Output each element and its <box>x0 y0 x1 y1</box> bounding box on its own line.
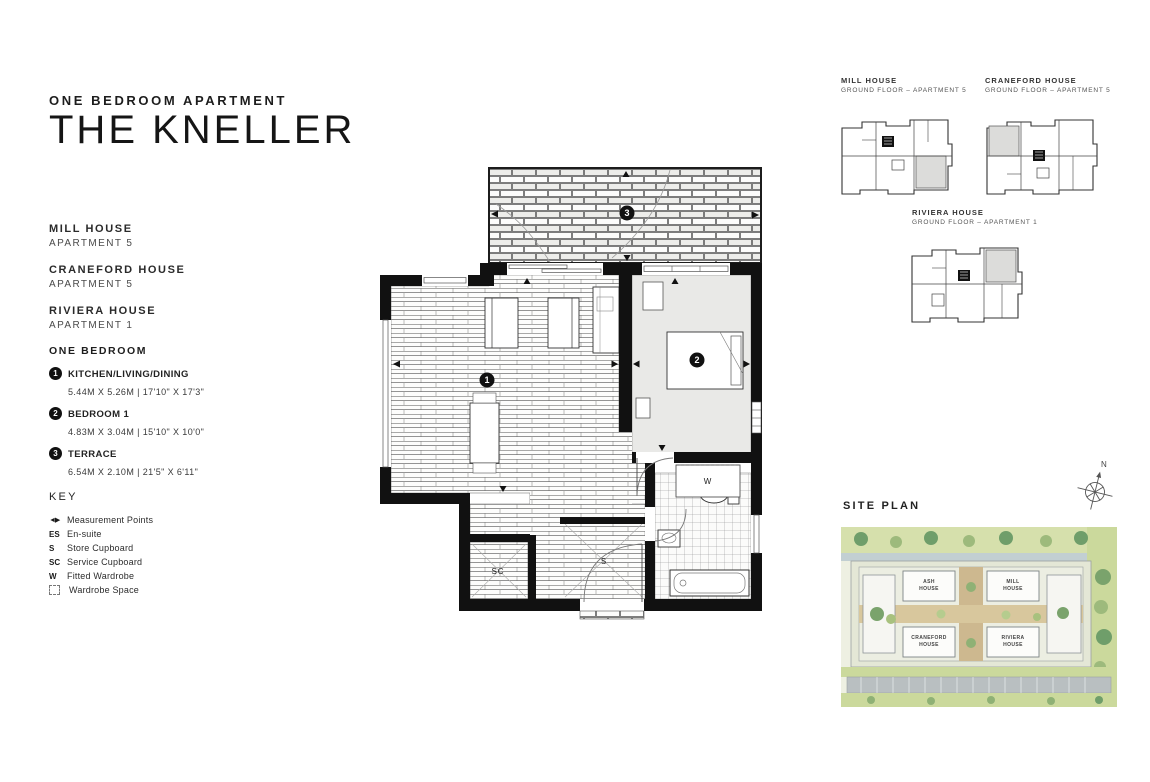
room-dimensions: 6.54M X 2.10M | 21'5" X 6'11" <box>68 467 289 477</box>
room-dimensions: 4.83M X 3.04M | 15'10" X 10'0" <box>68 427 289 437</box>
room-row: 2 BEDROOM 1 <box>49 407 289 420</box>
siteplan-label-mill: MILL HOUSE <box>987 579 1039 592</box>
building-item: CRANEFORD HOUSE APARTMENT 5 <box>49 264 279 290</box>
siteplan-label-craneford: CRANEFORD HOUSE <box>903 635 955 648</box>
building-apartment: APARTMENT 1 <box>49 320 279 331</box>
service-cupboard-plan-label: SC <box>491 567 504 576</box>
main-floorplan: 3 1 2 W SC S <box>380 162 765 620</box>
highlighted-unit <box>916 156 946 188</box>
measurement-points-icon: ◄▶ <box>49 516 67 524</box>
building-item: RIVIERA HOUSE APARTMENT 1 <box>49 305 279 331</box>
room-number-badge: 3 <box>49 447 62 460</box>
wardrobe-space-icon <box>49 585 60 595</box>
key-legend: KEY ◄▶ Measurement Points ES En-suite S … <box>49 491 249 595</box>
thumbnail-name: RIVIERA HOUSE <box>912 208 1052 217</box>
thumbnail-name: CRANEFORD HOUSE <box>985 76 1125 85</box>
thumbnail-caption-riviera: RIVIERA HOUSE GROUND FLOOR – APARTMENT 1 <box>912 208 1052 226</box>
dresser <box>643 282 663 310</box>
sofa <box>485 298 518 348</box>
compass: N <box>1072 458 1118 514</box>
room-row: 1 KITCHEN/LIVING/DINING <box>49 367 289 380</box>
key-label: Measurement Points <box>67 515 153 525</box>
room-schedule: ONE BEDROOM 1 KITCHEN/LIVING/DINING 5.44… <box>49 345 289 479</box>
key-label: En-suite <box>67 529 102 539</box>
siteplan-heading: SITE PLAN <box>843 500 920 512</box>
building-apartment: APARTMENT 5 <box>49 279 279 290</box>
siteplan-label-riviera: RIVIERA HOUSE <box>987 635 1039 648</box>
header: ONE BEDROOM APARTMENT THE KNELLER <box>49 93 355 153</box>
kitchen-marker: 1 <box>484 375 489 385</box>
key-row: S Store Cupboard <box>49 543 249 553</box>
key-row: ◄▶ Measurement Points <box>49 515 249 525</box>
siteplan-graphic <box>841 527 1117 707</box>
room-name: BEDROOM 1 <box>68 407 129 420</box>
room-row: 3 TERRACE <box>49 447 289 460</box>
riviera-house-miniplan <box>906 240 1026 324</box>
building-name: MILL HOUSE <box>49 223 279 235</box>
key-label: Fitted Wardrobe <box>67 571 134 581</box>
thumbnail-caption-craneford: CRANEFORD HOUSE GROUND FLOOR – APARTMENT… <box>985 76 1125 94</box>
room-number-badge: 1 <box>49 367 62 380</box>
key-label: Store Cupboard <box>67 543 133 553</box>
siteplan-map: ASH HOUSE MILL HOUSE CRANEFORD HOUSE RIV… <box>841 527 1117 707</box>
room-number-badge: 2 <box>49 407 62 420</box>
key-label: Wardrobe Space <box>69 585 139 595</box>
compass-north-label: N <box>1101 460 1107 469</box>
highlighted-unit <box>986 250 1016 282</box>
key-row: ES En-suite <box>49 529 249 539</box>
key-heading: KEY <box>49 491 249 503</box>
thumbnail-floor: GROUND FLOOR – APARTMENT 1 <box>912 219 1052 226</box>
thumbnail-floor: GROUND FLOOR – APARTMENT 5 <box>841 87 971 94</box>
terrace-marker: 3 <box>624 208 629 218</box>
wardrobe-plan-label: W <box>704 477 713 486</box>
key-row: SC Service Cupboard <box>49 557 249 567</box>
dining-table <box>470 403 499 463</box>
room-schedule-heading: ONE BEDROOM <box>49 345 289 357</box>
building-item: MILL HOUSE APARTMENT 5 <box>49 223 279 249</box>
thumbnail-caption-mill: MILL HOUSE GROUND FLOOR – APARTMENT 5 <box>841 76 971 94</box>
entry-step <box>580 611 644 619</box>
stair-core <box>882 136 894 147</box>
key-row: Wardrobe Space <box>49 585 249 595</box>
building-name: RIVIERA HOUSE <box>49 305 279 317</box>
room-name: TERRACE <box>68 447 117 460</box>
mill-house-miniplan <box>836 112 956 196</box>
thumbnail-name: MILL HOUSE <box>841 76 971 85</box>
apartment-type-subtitle: ONE BEDROOM APARTMENT <box>49 93 355 108</box>
room-dimensions: 5.44M X 5.26M | 17'10" X 17'3" <box>68 387 289 397</box>
floorplan-sheet: ONE BEDROOM APARTMENT THE KNELLER MILL H… <box>0 0 1150 782</box>
bedside-table <box>636 398 650 418</box>
building-list: MILL HOUSE APARTMENT 5 CRANEFORD HOUSE A… <box>49 223 279 346</box>
key-label: Service Cupboard <box>67 557 142 567</box>
room-name: KITCHEN/LIVING/DINING <box>68 367 189 380</box>
stair-core <box>958 270 970 281</box>
service-cupboard-symbol: SC <box>49 558 67 567</box>
building-name: CRANEFORD HOUSE <box>49 264 279 276</box>
highlighted-unit <box>989 126 1019 156</box>
thumbnail-floor: GROUND FLOOR – APARTMENT 5 <box>985 87 1125 94</box>
craneford-house-miniplan <box>981 112 1101 196</box>
siteplan-label-ash: ASH HOUSE <box>903 579 955 592</box>
stair-core <box>1033 150 1045 161</box>
bedroom-marker: 2 <box>694 355 699 365</box>
store-cupboard-symbol: S <box>49 544 67 553</box>
building-apartment: APARTMENT 5 <box>49 238 279 249</box>
store-cupboard-plan-label: S <box>601 557 607 566</box>
fitted-wardrobe-symbol: W <box>49 572 67 581</box>
ensuite-symbol: ES <box>49 530 67 539</box>
armchair <box>548 298 579 348</box>
page-title: THE KNELLER <box>49 108 355 153</box>
key-row: W Fitted Wardrobe <box>49 571 249 581</box>
